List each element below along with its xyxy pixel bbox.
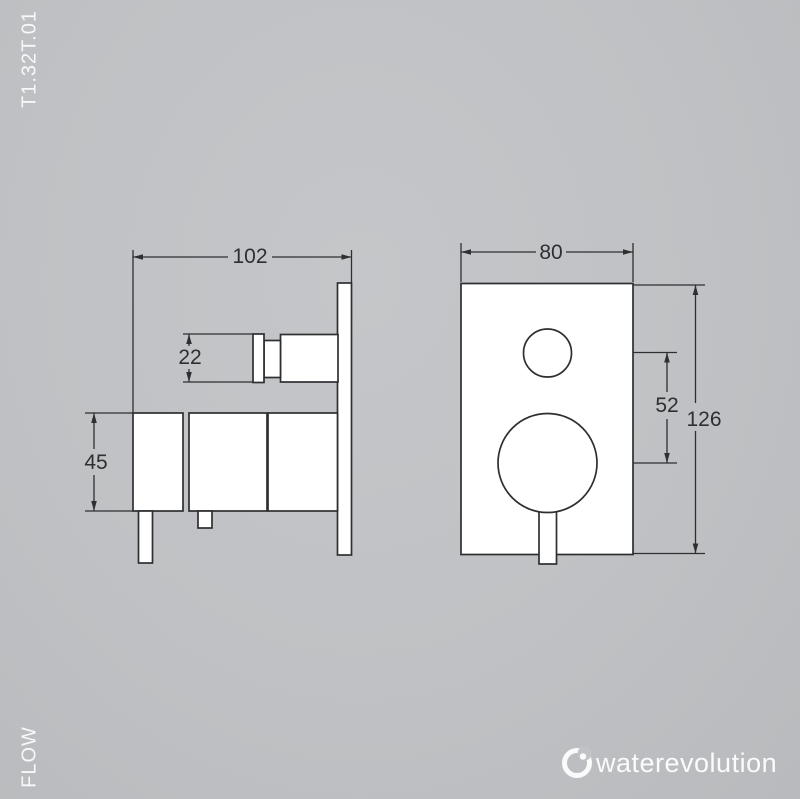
side-knob-stem	[264, 341, 281, 378]
dim-label-side-total-width: 102	[232, 245, 267, 268]
dim-102-extension-lines	[133, 250, 352, 413]
side-view	[133, 283, 352, 563]
dim-126-arrow-bottom	[693, 544, 699, 554]
front-view	[461, 284, 633, 565]
dim-102-arrow-left	[133, 254, 143, 260]
dim-80-arrow-left	[461, 249, 471, 255]
side-body-rear-section	[268, 413, 338, 511]
dim-45-arrow-bottom	[91, 501, 97, 511]
brand-logo: waterevolution	[561, 747, 777, 779]
front-diverter-knob	[524, 329, 572, 377]
side-body-front-section	[133, 413, 183, 511]
dim-label-body-height: 45	[84, 451, 107, 474]
side-index-tab	[198, 511, 212, 528]
dim-label-handle-spacing: 52	[655, 394, 678, 417]
side-body-middle-section	[189, 413, 267, 511]
dim-label-plate-height: 126	[686, 408, 721, 431]
dim-22-arrow-bottom	[186, 372, 192, 382]
side-knob-base	[281, 335, 339, 383]
page-background: T1.32T.01 FLOW 102	[0, 0, 800, 799]
front-mixer-knob	[498, 414, 597, 513]
dim-126-arrow-top	[693, 285, 699, 295]
dim-102-arrow-right	[342, 254, 352, 260]
dim-52-arrow-top	[664, 353, 670, 363]
brand-name: waterevolution	[596, 750, 777, 777]
dim-52-arrow-bottom	[664, 453, 670, 463]
technical-drawing: 102 22 45 80	[0, 0, 800, 799]
dim-label-knob-diameter: 22	[178, 346, 201, 369]
dim-80-arrow-right	[623, 249, 633, 255]
water-drop-circle-icon	[561, 747, 593, 779]
dim-22-arrow-top	[186, 334, 192, 344]
side-knob-cap	[253, 334, 264, 383]
side-lever-handle	[139, 511, 153, 563]
side-wall-plate	[338, 283, 352, 555]
dim-label-plate-width: 80	[539, 241, 562, 264]
dim-45-arrow-top	[91, 413, 97, 423]
